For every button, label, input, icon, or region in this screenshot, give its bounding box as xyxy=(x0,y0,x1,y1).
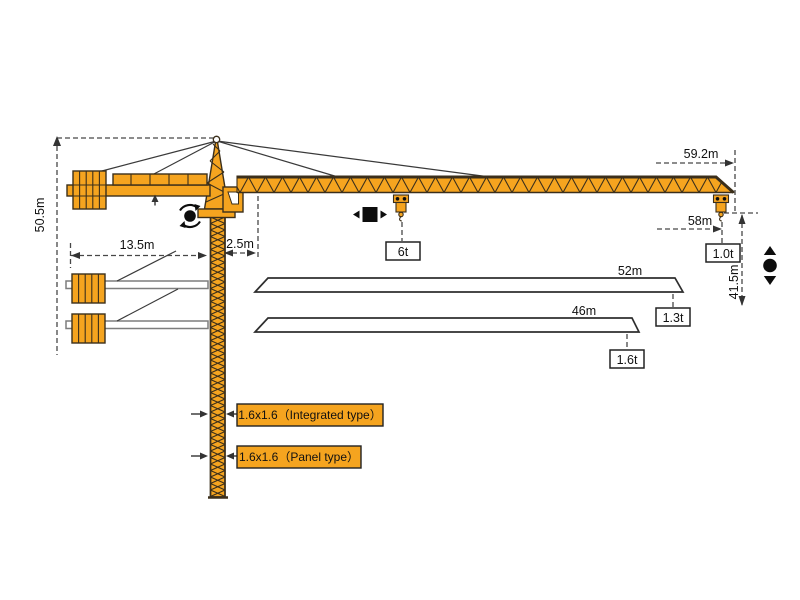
counter-jib-platform xyxy=(113,174,207,185)
mast-type-integrated-label: 1.6x1.6（Integrated type） xyxy=(238,408,381,422)
dimension-counter-jib-radius: 13.5m xyxy=(71,238,208,268)
dim-hook-height-label: 41.5m xyxy=(727,265,741,300)
pendant-lines xyxy=(100,141,490,177)
counterweight-assembly-1 xyxy=(66,251,208,303)
load-mid: 6t xyxy=(386,222,420,260)
load-tip-label: 1.0t xyxy=(713,247,734,261)
main-jib xyxy=(237,176,734,193)
mast-type-panel-label: 1.6x1.6（Panel type） xyxy=(239,450,359,464)
trolley-tip xyxy=(714,195,729,221)
counter-jib xyxy=(67,171,210,209)
dim-counter-jib-label: 13.5m xyxy=(120,238,155,252)
trolley-travel-icon xyxy=(353,207,387,222)
jib-variant-52m-label: 52m xyxy=(618,264,642,278)
jib-variant-52m: 52m 1.3t xyxy=(255,264,690,326)
jib-variant-52m-load: 1.3t xyxy=(663,311,684,325)
dimension-hook-radius: 58m xyxy=(657,214,722,243)
hook-mid xyxy=(399,212,403,216)
hoisting-icon xyxy=(763,246,777,285)
jib-variant-46m-label: 46m xyxy=(572,304,596,318)
jib-variant-46m: 46m 1.6t xyxy=(255,304,644,368)
trolley-mid xyxy=(394,195,409,221)
dim-total-height-label: 50.5m xyxy=(33,198,47,233)
hook-tip xyxy=(719,212,723,216)
load-tip: 1.0t xyxy=(706,244,740,262)
dim-hook-radius-label: 58m xyxy=(688,214,712,228)
dim-max-radius-label: 59.2m xyxy=(684,147,719,161)
jib-variant-46m-load: 1.6t xyxy=(617,353,638,367)
counterweight-block xyxy=(73,171,106,209)
crane-load-diagram: 50.5m 13.5m 2.5m 59.2m 58m 41.5m xyxy=(0,0,800,600)
tower-mast xyxy=(208,217,228,498)
load-mid-label: 6t xyxy=(398,245,409,259)
apex-pin xyxy=(213,136,219,142)
dim-tail-offset-label: 2.5m xyxy=(226,237,254,251)
